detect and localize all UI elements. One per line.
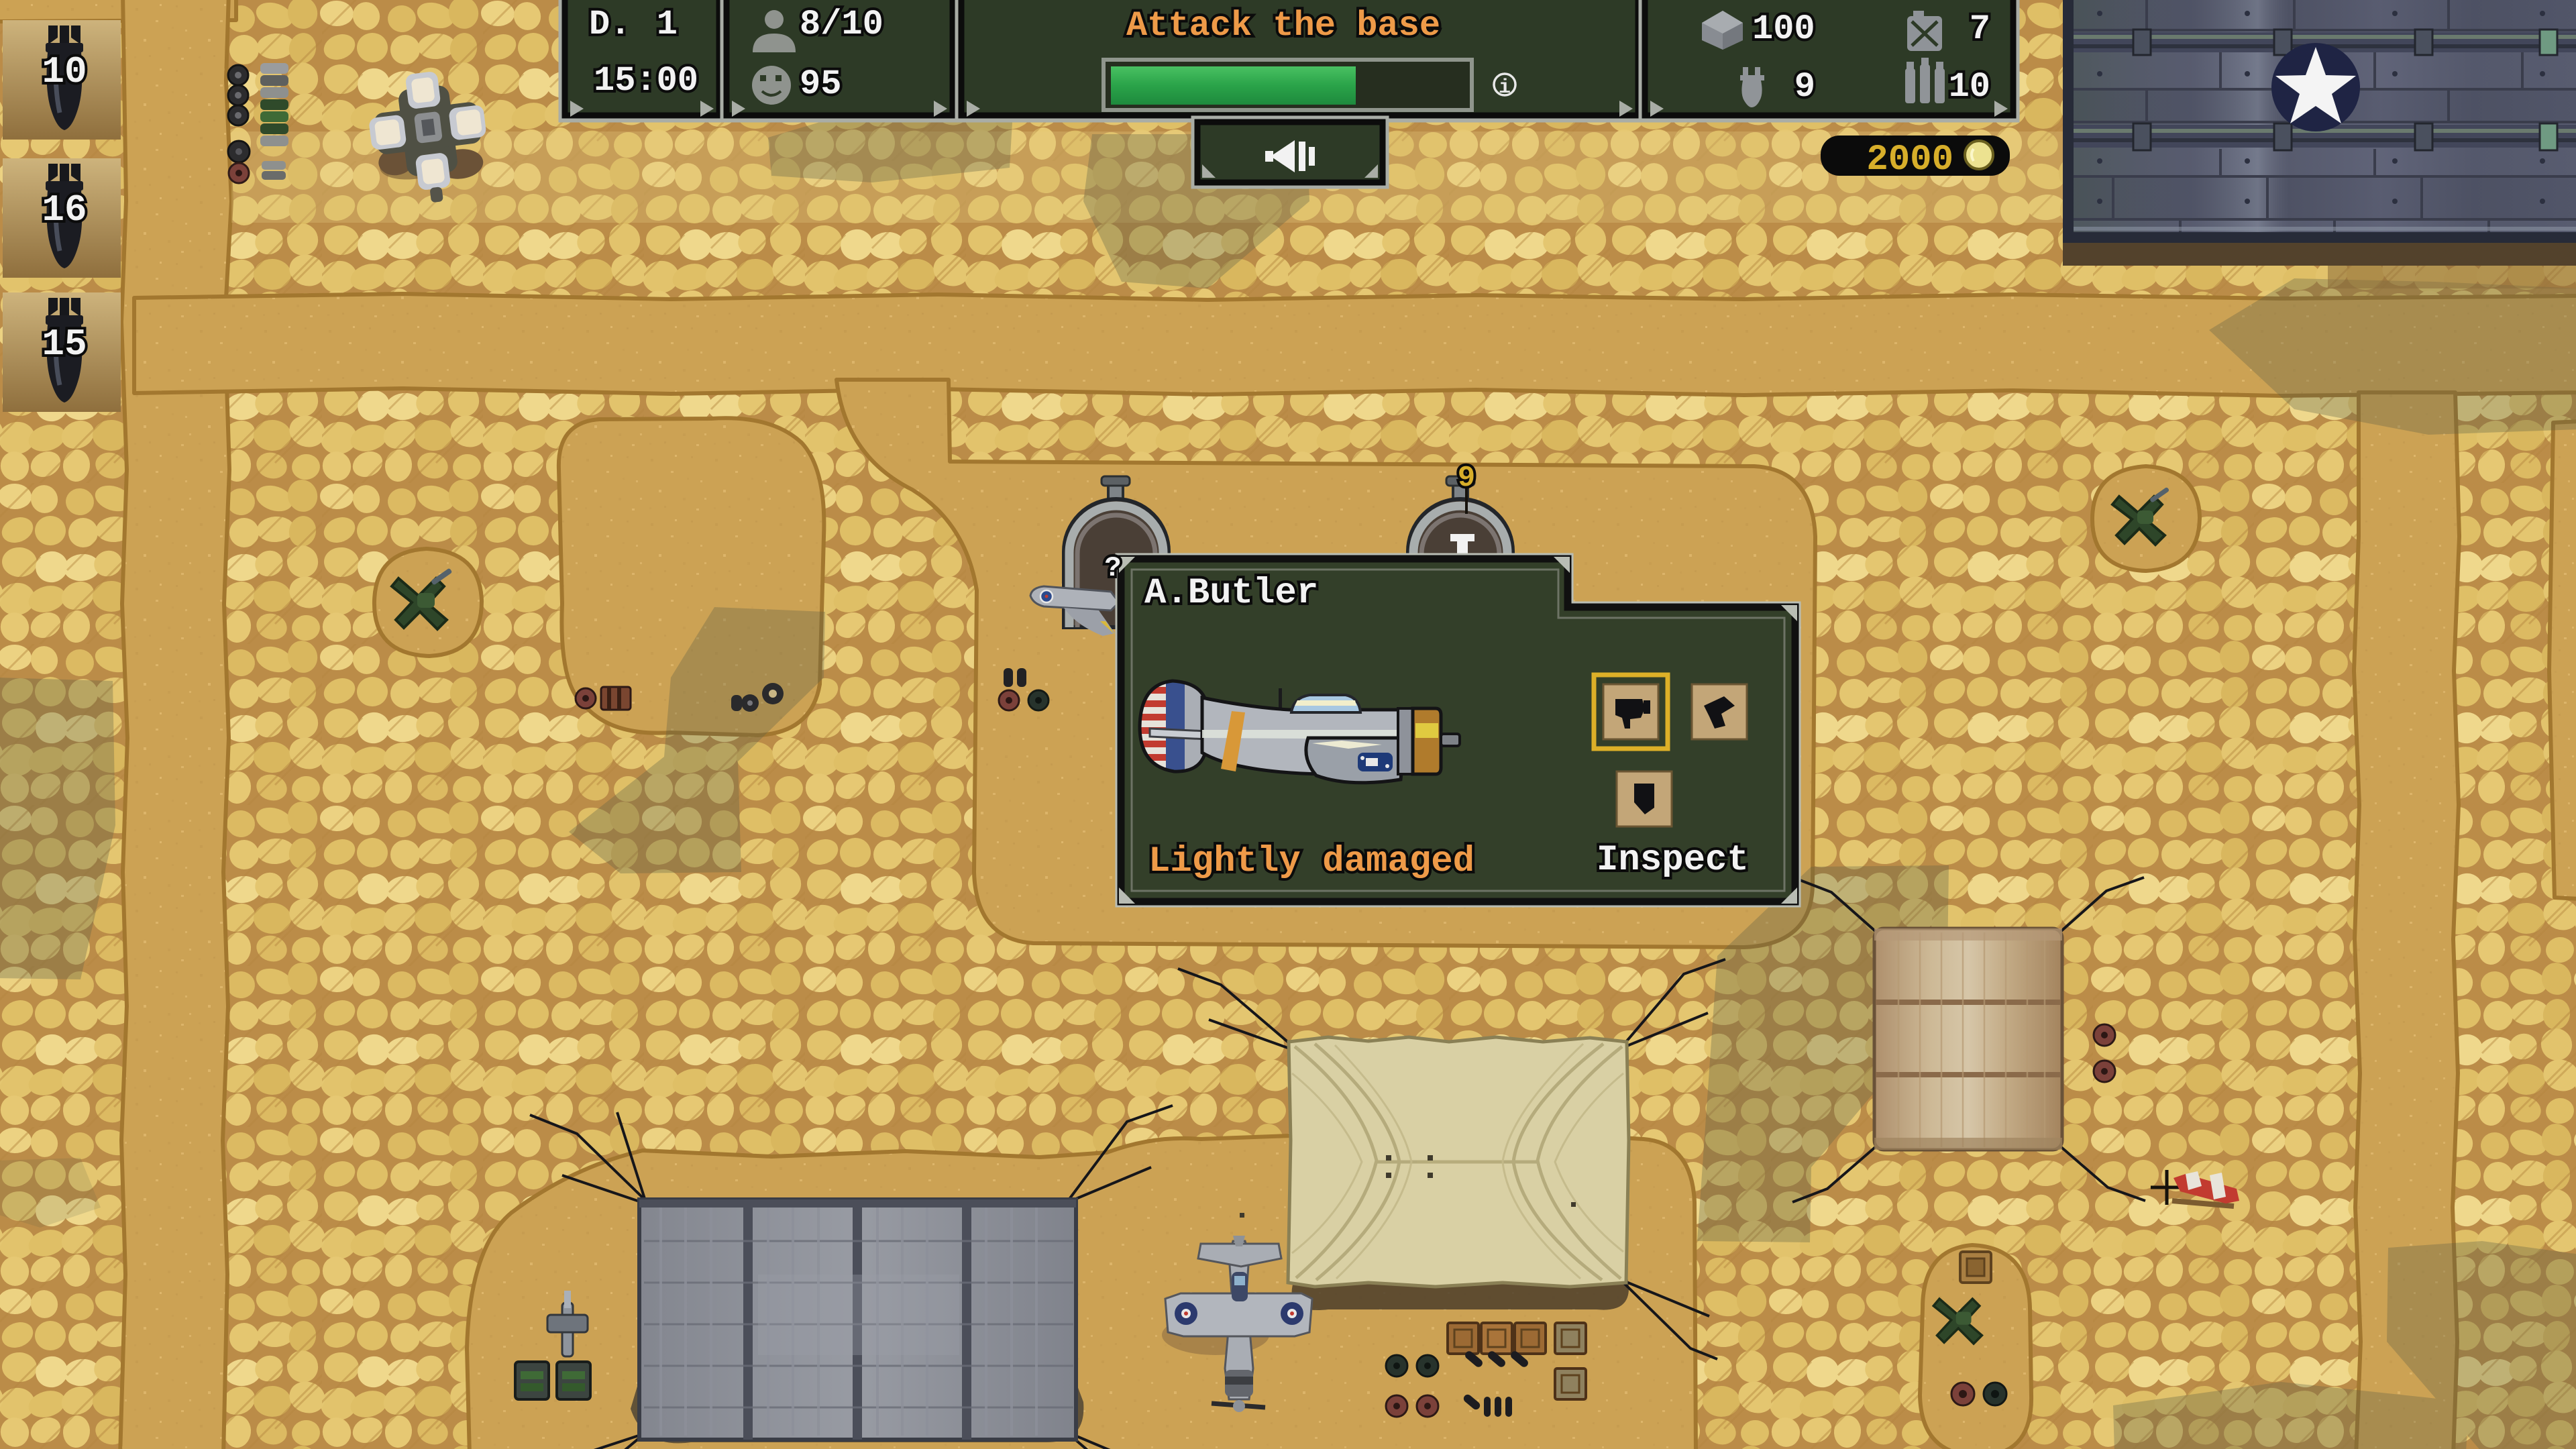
- svg-text:10: 10: [42, 50, 87, 93]
- svg-text:9: 9: [1458, 462, 1475, 495]
- svg-text:Attack the base: Attack the base: [1126, 6, 1440, 46]
- svg-text:95: 95: [800, 64, 841, 104]
- svg-text:1: 1: [657, 5, 678, 44]
- svg-text:16: 16: [42, 189, 87, 231]
- svg-text:Inspect: Inspect: [1597, 840, 1749, 881]
- svg-text:D.: D.: [589, 5, 631, 44]
- svg-text:100: 100: [1752, 9, 1815, 49]
- svg-text:8/10: 8/10: [800, 5, 883, 44]
- svg-text:15:00: 15:00: [594, 61, 698, 101]
- svg-text:2000: 2000: [1866, 140, 1953, 180]
- svg-text:i: i: [1499, 76, 1511, 99]
- svg-text:9: 9: [1794, 67, 1815, 107]
- svg-text:?: ?: [1104, 552, 1121, 584]
- svg-text:15: 15: [42, 323, 87, 366]
- svg-text:A.Butler: A.Butler: [1144, 573, 1318, 614]
- svg-text:Lightly damaged: Lightly damaged: [1148, 841, 1474, 882]
- svg-text:10: 10: [1949, 67, 1990, 107]
- svg-text:7: 7: [1970, 9, 1990, 49]
